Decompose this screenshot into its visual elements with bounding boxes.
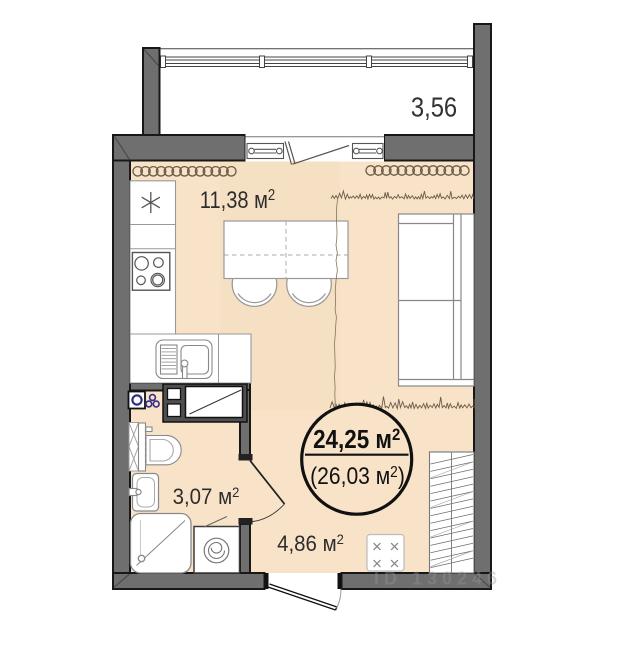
svg-text:24,25 м2: 24,25 м2 — [313, 426, 400, 455]
svg-text:11,38 м2: 11,38 м2 — [200, 186, 275, 213]
svg-text:3,56: 3,56 — [411, 91, 457, 123]
svg-text:4,86 м2: 4,86 м2 — [277, 531, 344, 556]
svg-text:ID 130246: ID 130246 — [374, 569, 502, 589]
svg-text:3,07 м2: 3,07 м2 — [173, 484, 240, 509]
